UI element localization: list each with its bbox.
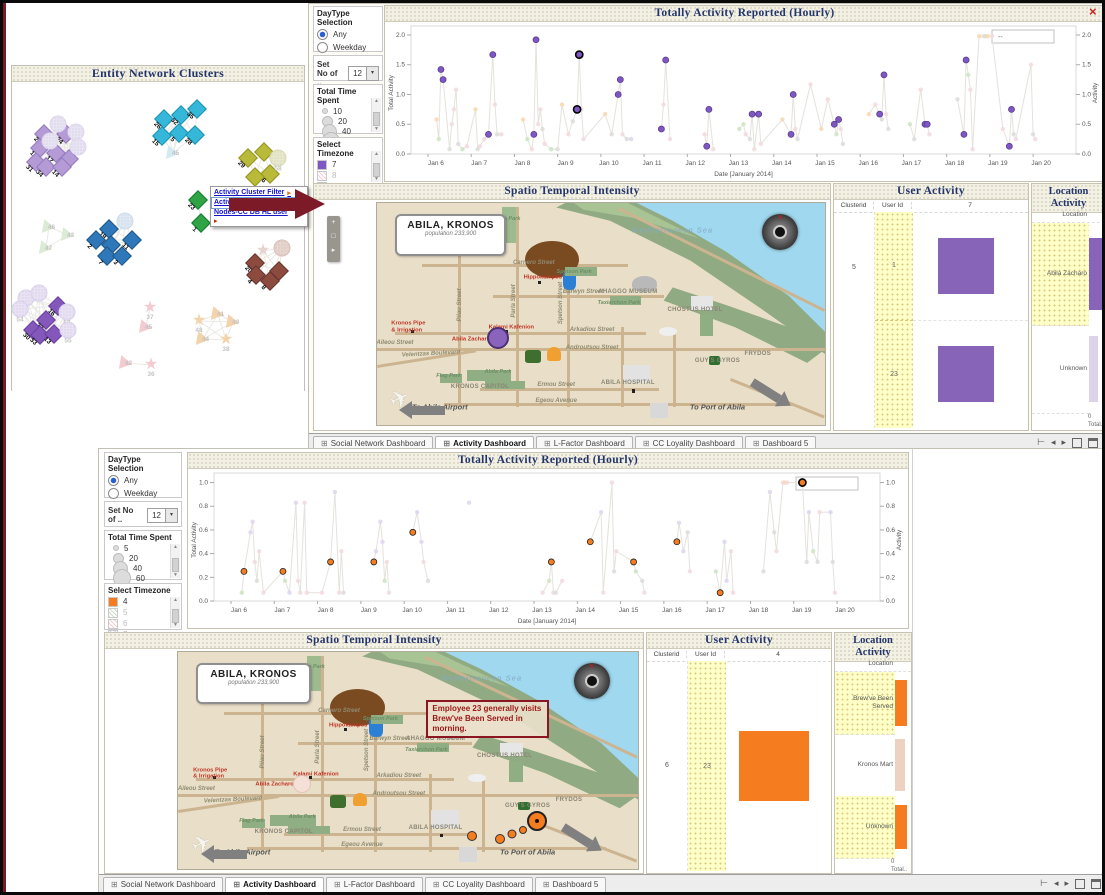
compass-center (773, 225, 787, 239)
data-point (438, 66, 444, 72)
activity-square[interactable] (938, 238, 994, 294)
tab-activity-dashboard[interactable]: ⊞Activity Dashboard (225, 877, 324, 892)
node-label: 47 (45, 245, 52, 252)
network-node-36: ★36 (144, 360, 158, 370)
network-node-38: ★38 (219, 335, 233, 345)
svg-text:0.4: 0.4 (199, 551, 208, 558)
map-label: Kronos Pipe & Irrigation (193, 767, 227, 780)
radio-option-weekday[interactable]: Weekday (105, 487, 181, 500)
left-accent-stripe (3, 3, 6, 892)
chart-panel-bottom: Totally Activity Reported (Hourly) Jan 6… (187, 452, 909, 629)
bars-area (913, 212, 1028, 428)
pager-first-icon[interactable]: ⊢ (1040, 878, 1048, 889)
map-toolbar[interactable]: +□▸ (327, 216, 340, 262)
panel-title: User Activity (834, 184, 1028, 200)
setno-filter: Set No of ..12▾ (313, 55, 383, 81)
map-label: GUY'S GYROS (695, 358, 740, 364)
network-node-37: ★37 (143, 303, 157, 313)
table-footer: 0Total.. (1032, 413, 1105, 431)
map-marker[interactable] (507, 830, 516, 839)
data-point (790, 91, 796, 97)
timezone-filter: Select Timezone78910▲▼ (313, 137, 383, 184)
location-row[interactable]: Unknown (835, 796, 895, 859)
data-point (924, 121, 930, 127)
map-label: Ermou Street (537, 382, 575, 388)
svg-text:1.0: 1.0 (1082, 91, 1091, 98)
data-point (1006, 143, 1012, 149)
svg-text:Jan 7: Jan 7 (471, 160, 487, 167)
svg-text:0.0: 0.0 (1082, 151, 1091, 158)
city-plaque: ABILA, KRONOSpopulation 233,900 (395, 214, 507, 256)
timezone-label: 8 (332, 171, 336, 180)
timezone-swatch (317, 160, 327, 170)
map-label: Barwyn Street (563, 289, 603, 295)
map-label: Spetson Park (557, 269, 592, 275)
chart-title: Totally Activity Reported (Hourly) (385, 6, 1104, 22)
map-marker[interactable] (487, 327, 509, 349)
svg-text:0.5: 0.5 (1082, 121, 1091, 128)
network-node-42: 42 (119, 355, 133, 371)
network-node-47: 47 (39, 240, 53, 256)
svg-text:Total Activity: Total Activity (191, 521, 198, 558)
size-label: 5 (124, 544, 128, 553)
map-label: Mediterranean Sea (441, 674, 522, 683)
map-label: Androutsou Street (566, 345, 619, 351)
scroll-down-icon[interactable]: ▼ (372, 126, 381, 132)
dropdown-arrow-icon: ▾ (366, 67, 378, 80)
timespent-legend: Total Time Spent5204060▲▼ (104, 530, 182, 580)
pager-controls: ⊢◂▸ (1040, 875, 1101, 892)
svg-text:Jan 13: Jan 13 (532, 607, 552, 614)
location-bar[interactable] (895, 739, 905, 791)
user-activity-panel-bottom: User ActivityClusteridUser Id4623 (646, 632, 832, 874)
compass-north: N (590, 664, 594, 670)
map-label: Abila Zacharo (452, 336, 490, 343)
map-label: CHOSTUS HOTEL (477, 753, 532, 759)
location-name: Brew've Been Served (835, 695, 895, 711)
abila-map-bottom[interactable]: Carnero StreetBarwyn StreetArkadiou Stre… (177, 651, 639, 870)
map-label: To Port of Abila (500, 847, 555, 856)
map-label: Carnero Street (513, 260, 555, 266)
svg-text:Jan 14: Jan 14 (576, 607, 596, 614)
radio-label: Weekday (124, 489, 157, 498)
svg-text:Jan 20: Jan 20 (1031, 160, 1051, 167)
location-row[interactable]: Abila Zacharo (1032, 223, 1089, 326)
svg-text:Jan 6: Jan 6 (428, 160, 444, 167)
map-label: Hippokampos (329, 722, 367, 729)
table-body: 5123 (834, 212, 1028, 428)
radio-selected[interactable] (108, 475, 119, 486)
airport-arrow-icon (201, 845, 251, 863)
port-arrow-icon (559, 819, 608, 859)
scrollbar[interactable]: ▲▼ (371, 151, 381, 182)
table-body: 623 (647, 661, 831, 871)
data-point (576, 51, 583, 58)
radio-unselected[interactable] (317, 42, 328, 53)
road (673, 332, 676, 407)
map-toolbar-icon[interactable]: □ (327, 230, 340, 244)
data-point (663, 57, 669, 63)
size-label: 20 (129, 554, 138, 563)
activity-chart-top[interactable]: Jan 6Jan 7Jan 8Jan 9Jan 10Jan 11Jan 12Ja… (385, 22, 1102, 180)
network-node (42, 133, 59, 150)
location-bar[interactable] (1089, 336, 1098, 402)
presentation-icon[interactable] (1088, 438, 1098, 448)
map-landmark-shape (650, 403, 668, 419)
map-marker[interactable] (519, 826, 527, 834)
svg-text:--: -- (998, 34, 1003, 41)
svg-text:0.0: 0.0 (396, 151, 405, 158)
scroll-down-icon[interactable]: ▼ (171, 622, 180, 628)
data-point (440, 77, 446, 83)
userid-cell[interactable]: 23 (688, 661, 726, 871)
svg-text:Jan 11: Jan 11 (446, 607, 465, 614)
pager-first-icon[interactable]: ⊢ (1037, 437, 1045, 448)
row-divider (913, 320, 1028, 321)
map-landmark-shape (700, 314, 713, 336)
scroll-down-icon[interactable]: ▼ (372, 176, 381, 182)
location-bar[interactable] (1089, 238, 1102, 310)
window-divider (912, 449, 913, 875)
data-point (717, 590, 723, 596)
tab-social-network-dashboard[interactable]: ⊞Social Network Dashboard (103, 877, 223, 892)
svg-text:Jan 6: Jan 6 (231, 607, 247, 614)
map-label: Parla Street (315, 731, 321, 764)
dashboard-tabs-bottom: ⊞Social Network Dashboard⊞Activity Dashb… (99, 874, 1105, 892)
compass-center (585, 674, 599, 688)
size-label: 60 (136, 574, 145, 583)
map-label: Egeou Avenue (535, 398, 576, 404)
timezone-swatch (108, 597, 118, 607)
data-point (877, 111, 883, 117)
svg-text:Jan 17: Jan 17 (902, 160, 922, 167)
scrollbar-thumb[interactable] (373, 112, 380, 126)
data-point (704, 143, 710, 149)
clusterid-cell: 5 (834, 212, 875, 428)
node-label: 46 (48, 224, 55, 231)
radio-option-weekday[interactable]: Weekday (314, 41, 382, 54)
node-label: 36 (147, 370, 154, 380)
airport-arrow-icon (399, 401, 449, 419)
data-point (241, 568, 247, 574)
svg-text:Jan 14: Jan 14 (772, 160, 792, 167)
activity-dashboard-top: DayType SelectionAnyWeekdayWeekend Set N… (308, 3, 1105, 452)
map-marker[interactable] (293, 775, 311, 793)
chart-title: Totally Activity Reported (Hourly) (188, 453, 908, 469)
city-plaque: ABILA, KRONOSpopulation 233,900 (196, 663, 310, 704)
svg-text:0.2: 0.2 (199, 574, 208, 581)
dropdown-arrow-icon: ▾ (165, 509, 177, 522)
location-row[interactable]: Brew've Been Served (835, 672, 895, 735)
col-userid: User Id (687, 651, 725, 658)
radio-option-any[interactable]: Any (314, 28, 382, 41)
data-point (963, 57, 969, 63)
userid-cell[interactable]: 23 (875, 321, 913, 429)
footer-total: Total.. (891, 866, 911, 874)
map-label: Abila Zacharo (255, 782, 293, 789)
map-label: Aileou Street (376, 340, 413, 346)
clusterid-cell: 6 (647, 661, 688, 871)
fullscreen-icon[interactable] (1075, 879, 1085, 889)
sheet-icon: ⊞ (753, 439, 760, 448)
map-label: Spetson Park (363, 716, 398, 722)
svg-text:Jan 17: Jan 17 (705, 607, 725, 614)
timezone-label: 4 (123, 597, 127, 606)
map-marker[interactable] (495, 834, 505, 844)
map-label: To Port of Abila (690, 403, 745, 412)
red-arrow (229, 189, 325, 219)
radio-option-any[interactable]: Any (105, 474, 181, 487)
map-label: Carnero Street (318, 708, 360, 714)
location-activity-panel-bottom: Location ActivityLocationBrew've Been Se… (834, 632, 912, 874)
svg-text:Activity: Activity (896, 529, 903, 550)
network-clusters-window: Entity Network Clusters 2124181722313414… (11, 65, 305, 391)
city-name: ABILA, KRONOS (198, 669, 308, 680)
map-landmark-shape (547, 347, 560, 360)
tab-cc-loyality-dashboard[interactable]: ⊞CC Loyality Dashboard (425, 877, 533, 892)
sheet-icon: ⊞ (543, 880, 550, 889)
svg-text:0.5: 0.5 (396, 121, 405, 128)
location-name: Unknown (866, 823, 895, 831)
map-label: ABILA HOSPITAL (601, 380, 655, 386)
setno-label: Set No of .. (108, 506, 139, 524)
size-label: 10 (333, 107, 342, 116)
map-label: Androutsou Street (372, 791, 425, 797)
userid-column: 23 (688, 661, 726, 871)
map-label: Arkadiou Street (376, 773, 421, 779)
svg-text:Jan 19: Jan 19 (988, 160, 1008, 167)
activity-square[interactable] (938, 346, 994, 402)
radio-selected[interactable] (317, 29, 328, 40)
location-name: Abila Zacharo (1047, 270, 1089, 278)
map-toolbar-icon[interactable]: ▸ (327, 244, 340, 258)
network-node-43: 43 (61, 227, 75, 243)
data-point (573, 106, 580, 113)
map-label: Spetson Street (364, 728, 370, 770)
table-body: Abila ZacharoUnknown0Total.. (1032, 223, 1105, 430)
location-bar[interactable] (895, 805, 907, 849)
size-label: 40 (133, 564, 142, 573)
map-landmark-shape (353, 793, 367, 806)
svg-text:Jan 7: Jan 7 (274, 607, 290, 614)
svg-text:Date [January 2014]: Date [January 2014] (714, 171, 773, 178)
size-label: 20 (338, 117, 347, 126)
city-name: ABILA, KRONOS (397, 220, 505, 231)
radio-unselected[interactable] (108, 488, 119, 499)
presentation-icon[interactable] (1091, 879, 1101, 889)
map-label: Mediterranean Sea (632, 225, 713, 234)
col-location: Location (835, 660, 911, 672)
activity-dashboard-bottom: DayType SelectionAnyWeekdayWeekend Set N… (98, 448, 1105, 895)
pager-prev-icon[interactable]: ◂ (1054, 878, 1059, 889)
map-panel-bottom: Spatio Temporal Intensity Carnero Street… (104, 632, 644, 874)
data-point (587, 539, 593, 545)
col-location: Location (1032, 211, 1105, 223)
data-point (674, 539, 680, 545)
panel-title: Location Activity (835, 633, 911, 662)
data-point (328, 559, 334, 565)
map-annotation: Employee 23 generally visits Brew've Bee… (426, 700, 548, 738)
fullscreen-icon[interactable] (1072, 438, 1082, 448)
clusterid-value: 6 (647, 762, 687, 769)
table-footer: 0Total.. (835, 858, 911, 874)
map-label: Pilau Street (457, 289, 463, 322)
pager-next-icon[interactable]: ▸ (1061, 437, 1066, 448)
map-label: GUY'S GYROS (505, 803, 550, 809)
data-point (371, 559, 377, 565)
svg-text:Jan 16: Jan 16 (858, 160, 878, 167)
svg-text:1.0: 1.0 (396, 91, 405, 98)
sheet-icon: ⊞ (443, 439, 450, 448)
setno-filter: Set No of ..12▾ (104, 501, 182, 527)
timespent-legend: Total Time Spent10204060▲▼ (313, 84, 383, 134)
network-node-41: 41 (211, 306, 225, 322)
footer-total: Total.. (1088, 421, 1105, 429)
data-point (533, 37, 539, 43)
data-point (548, 559, 554, 565)
filter-title: Select Timezone (105, 584, 181, 596)
svg-text:Date [January 2014]: Date [January 2014] (518, 618, 577, 625)
map-panel-top: Spatio Temporal Intensity Carnero Street… (313, 183, 831, 431)
col-value: 4 (725, 651, 831, 658)
table-header: ClusteridUser Id7 (834, 199, 1028, 213)
pager-prev-icon[interactable]: ◂ (1051, 437, 1056, 448)
map-label: ABILA HOSPITAL (409, 825, 463, 831)
scroll-down-icon[interactable]: ▼ (171, 572, 180, 578)
data-point (490, 52, 496, 58)
svg-text:Jan 13: Jan 13 (729, 160, 749, 167)
setno-select[interactable]: 12▾ (147, 508, 178, 523)
location-name: Unknown (1060, 365, 1089, 373)
sheet-icon: ⊞ (433, 880, 440, 889)
svg-text:Jan 16: Jan 16 (662, 607, 682, 614)
svg-text:0.0: 0.0 (886, 598, 895, 605)
map-label: Kronos Pipe & Irrigation (391, 321, 425, 334)
data-point (1008, 106, 1014, 112)
size-circle (322, 108, 328, 114)
node-label: 45 (145, 324, 152, 331)
map-toolbar-icon[interactable]: + (327, 216, 340, 230)
location-row[interactable]: Kronos Mart (835, 734, 895, 797)
close-icon[interactable]: × (1089, 7, 1097, 17)
setno-select[interactable]: 12▾ (348, 66, 379, 81)
node-label: 44 (202, 336, 209, 343)
data-point (836, 116, 842, 122)
map-label: FRYDOS (556, 797, 583, 803)
network-node-55: 55 (60, 322, 77, 339)
network-canvas[interactable]: 2124181722313414263235155284546434719291… (12, 82, 304, 391)
map-label: Pilau Street (260, 735, 266, 768)
col-value: 7 (912, 202, 1028, 209)
user-activity-panel-top: User ActivityClusteridUser Id75123 (833, 183, 1029, 431)
city-population: population 233,900 (397, 231, 505, 237)
svg-text:1.5: 1.5 (1082, 62, 1091, 69)
size-label: 40 (342, 127, 351, 136)
node-label: 55 (64, 338, 71, 345)
userid-cell[interactable]: 1 (875, 212, 913, 321)
activity-chart-bottom[interactable]: Jan 6Jan 7Jan 8Jan 9Jan 10Jan 11Jan 12Ja… (188, 469, 906, 627)
network-node (31, 285, 48, 302)
timezone-filter: Select Timezone4567▲▼ (104, 583, 182, 630)
tab-dashboard-5[interactable]: ⊞Dashboard 5 (535, 877, 607, 892)
network-node (50, 116, 67, 133)
footer-zero: 0 (891, 858, 911, 866)
map-title: Spatio Temporal Intensity (314, 184, 830, 200)
map-label: Abila Park (289, 814, 316, 820)
map-label: Barwyn Street (369, 736, 409, 742)
map-label: Ermou Street (343, 827, 381, 833)
setno-value: 12 (349, 69, 366, 78)
map-label: Flag Park (239, 818, 264, 824)
network-node: ★ (256, 246, 270, 256)
map-label: Egeou Avenue (341, 842, 382, 848)
scrollbar[interactable]: ▲▼ (170, 544, 180, 578)
svg-text:0.8: 0.8 (199, 503, 208, 510)
svg-text:Jan 18: Jan 18 (945, 160, 965, 167)
map-landmark-shape (459, 847, 477, 862)
location-bar[interactable] (895, 680, 907, 726)
daytype-filter: DayType SelectionAnyWeekdayWeekend (313, 6, 383, 52)
timezone-label: 6 (123, 619, 127, 628)
tab-l-factor-dashboard[interactable]: ⊞L-Factor Dashboard (326, 877, 423, 892)
map-marker[interactable] (527, 811, 547, 831)
svg-text:2.0: 2.0 (396, 32, 405, 39)
map-label: Taxiarchon Park (598, 300, 641, 306)
scrollbar[interactable]: ▲▼ (170, 597, 180, 628)
filter-title: DayType Selection (314, 7, 382, 28)
data-point (756, 111, 762, 117)
marker-center-dot (535, 819, 539, 823)
data-point (410, 529, 416, 535)
data-point (831, 121, 837, 127)
map-landmark-shape (330, 795, 346, 808)
svg-text:1.0: 1.0 (886, 480, 895, 487)
location-row[interactable]: Unknown (1032, 325, 1089, 414)
size-circle (113, 545, 119, 551)
network-title: Entity Network Clusters (12, 66, 304, 82)
network-node (70, 139, 87, 156)
road (321, 656, 324, 851)
scrollbar-thumb[interactable] (172, 558, 179, 572)
abila-map-top[interactable]: Carnero StreetBarwyn StreetArkadiou Stre… (376, 202, 826, 426)
network-node-46: 46 (42, 219, 56, 235)
svg-text:Jan 8: Jan 8 (514, 160, 530, 167)
filter-title: Total Time Spent (105, 531, 181, 543)
svg-text:Jan 15: Jan 15 (619, 607, 639, 614)
svg-text:Jan 18: Jan 18 (749, 607, 769, 614)
map-marker[interactable] (467, 831, 477, 841)
activity-square[interactable] (739, 731, 809, 801)
compass-north: N (778, 215, 782, 221)
data-point (631, 559, 637, 565)
node-label: 38 (222, 345, 229, 355)
node-label: 43 (67, 232, 74, 239)
data-point (881, 72, 887, 78)
data-point (961, 131, 967, 137)
map-landmark-shape (509, 761, 523, 783)
network-node (117, 213, 134, 230)
port-arrow-icon (748, 374, 797, 414)
node-label: 45 (172, 150, 179, 157)
pager-next-icon[interactable]: ▸ (1064, 878, 1069, 889)
city-population: population 233,900 (198, 680, 308, 686)
svg-text:Activity: Activity (1092, 82, 1099, 103)
sheet-icon: ⊞ (321, 439, 328, 448)
map-label: AHAGGO MUSEUM (598, 289, 657, 295)
setno-label: Set No of .. (317, 60, 340, 87)
panel-title: Location Activity (1032, 184, 1105, 213)
scrollbar[interactable]: ▲▼ (371, 98, 381, 132)
